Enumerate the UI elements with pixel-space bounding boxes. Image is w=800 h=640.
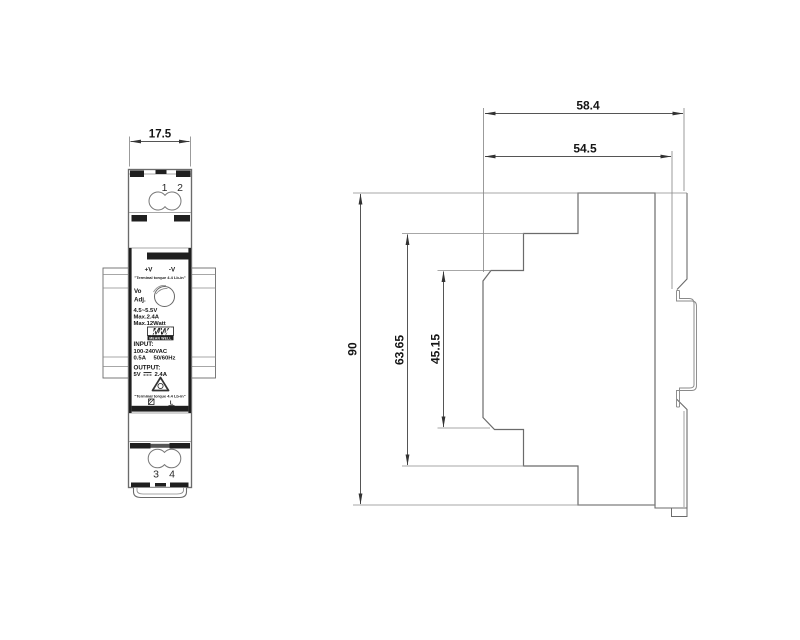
vo-label: Vo [134,288,142,295]
vminus-label: -V [169,267,176,274]
output-title: OUTPUT: [134,365,161,372]
rear-top-claw [677,193,687,290]
voltage-range: 4.5~5.5V [134,308,158,314]
input-frequency: 50/60Hz [154,355,176,361]
terminal-1-label: 1 [162,182,168,194]
terminal-3-label: 3 [153,469,159,481]
side-view: 58.4 54.5 90 63.65 45.15 [346,99,697,517]
terminal-2-label: 2 [177,182,183,194]
din-rail-front-right-tab [192,268,216,378]
dimension-height: 90 [346,194,361,504]
dim-recess-value: 63.65 [393,335,407,365]
front-view: 17.5 1 2 +V [103,129,216,498]
case-side-profile [483,193,655,505]
dim-depth-body-value: 54.5 [573,142,597,156]
bottom-terminal-screw-marks [131,483,189,488]
meanwell-logo-icon: MW MEAN WELL [148,326,174,340]
dimension-width: 17.5 [130,129,191,167]
vplus-label: +V [145,267,154,274]
brand-name: MEAN WELL [149,336,171,340]
dim-width-value: 17.5 [149,129,172,141]
output-voltage: 5V [134,372,141,378]
rear-bottom-claw [655,399,687,508]
torque-note-top: "Terminal torque 4.4 Lb-in" [134,275,185,280]
terminal-top-holes [149,192,181,210]
terminal-4-label: 4 [169,469,175,481]
dim-slot-value: 45.15 [429,334,443,364]
adj-label: Adj. [134,297,146,304]
label-right-edge [188,248,191,413]
max-current: Max.2.4A [134,315,160,321]
torque-note-bottom: "Terminal torque 4.4 Lb-in" [134,394,185,399]
din-psu-dimension-drawing: 17.5 1 2 +V [0,0,800,640]
din-rail-profile [677,291,697,408]
terminal-bottom-holes [148,449,181,468]
bottom-cap [134,488,187,498]
din-release-clip [672,508,688,517]
label-bottom-band [132,406,189,412]
neutral-terminal-icon [149,399,155,405]
dim-height-value: 90 [346,342,360,356]
voltage-adjust-pot-icon [154,285,175,306]
input-voltage: 100-240VAC [134,349,168,355]
dim-depth-overall-value: 58.4 [576,99,600,113]
dimension-slot-height: 45.15 [429,271,492,429]
mechanical-drawing-page: 17.5 1 2 +V [0,0,800,640]
din-rail-front-left-tab [103,268,129,378]
input-title: INPUT: [134,341,154,348]
input-current: 0.5A [134,355,147,361]
label-left-edge [129,248,132,413]
label-top-band [147,253,189,260]
